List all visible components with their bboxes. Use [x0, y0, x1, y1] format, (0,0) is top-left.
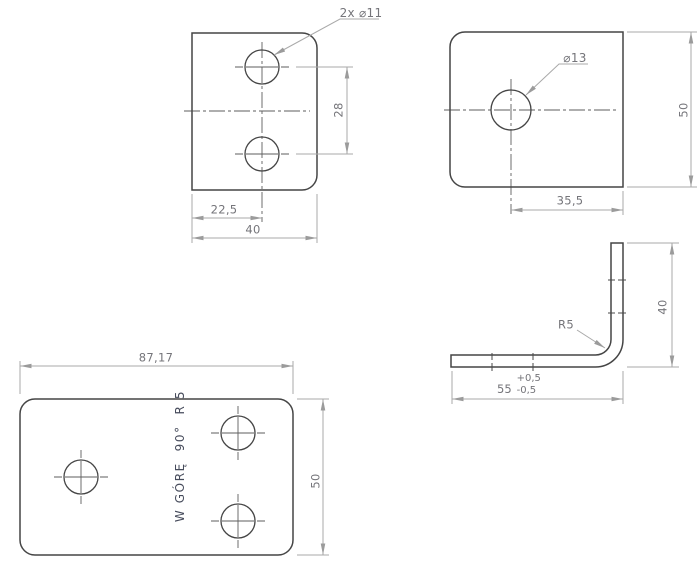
dim-hole-offset-35-5: 35,5: [557, 195, 584, 207]
plate-outline: [192, 33, 317, 190]
dim-plate-height-50: 50: [678, 102, 690, 117]
dim-hole-offset-22-5: 22,5: [211, 204, 238, 216]
dim-hole-callout-13: ⌀13: [563, 52, 586, 64]
dim-flange-width-40: 40: [245, 224, 260, 236]
dim-hole-spacing-28: 28: [333, 102, 345, 117]
bend-note: W GÓRĘ 90° R 5: [174, 390, 186, 522]
dim-bend-radius-r5: R5: [558, 319, 574, 331]
dim-leg-height-40: 40: [657, 299, 669, 314]
dim-leg-length-value: 55: [497, 384, 512, 397]
leader-line: [274, 19, 379, 55]
dim-tolerance-minus: -0,5: [517, 385, 541, 397]
drawing-linework: [0, 0, 700, 562]
dim-leg-length-55-tol: 55 +0,5 -0,5: [497, 373, 541, 396]
leader-line: [526, 64, 588, 95]
dim-tolerance-plus: +0,5: [517, 373, 541, 385]
dim-hole-callout-2x11: 2x ⌀11: [340, 7, 383, 19]
drawing-sheet: 2x ⌀11 28 22,5 40 ⌀13 50 35,5 R5 40 55 +…: [0, 0, 700, 562]
dim-flat-height-50: 50: [310, 473, 322, 488]
leader-line: [577, 330, 605, 348]
plate-outline: [450, 32, 623, 187]
profile-outline: [451, 243, 623, 367]
dim-flat-width-87-17: 87,17: [139, 352, 173, 364]
